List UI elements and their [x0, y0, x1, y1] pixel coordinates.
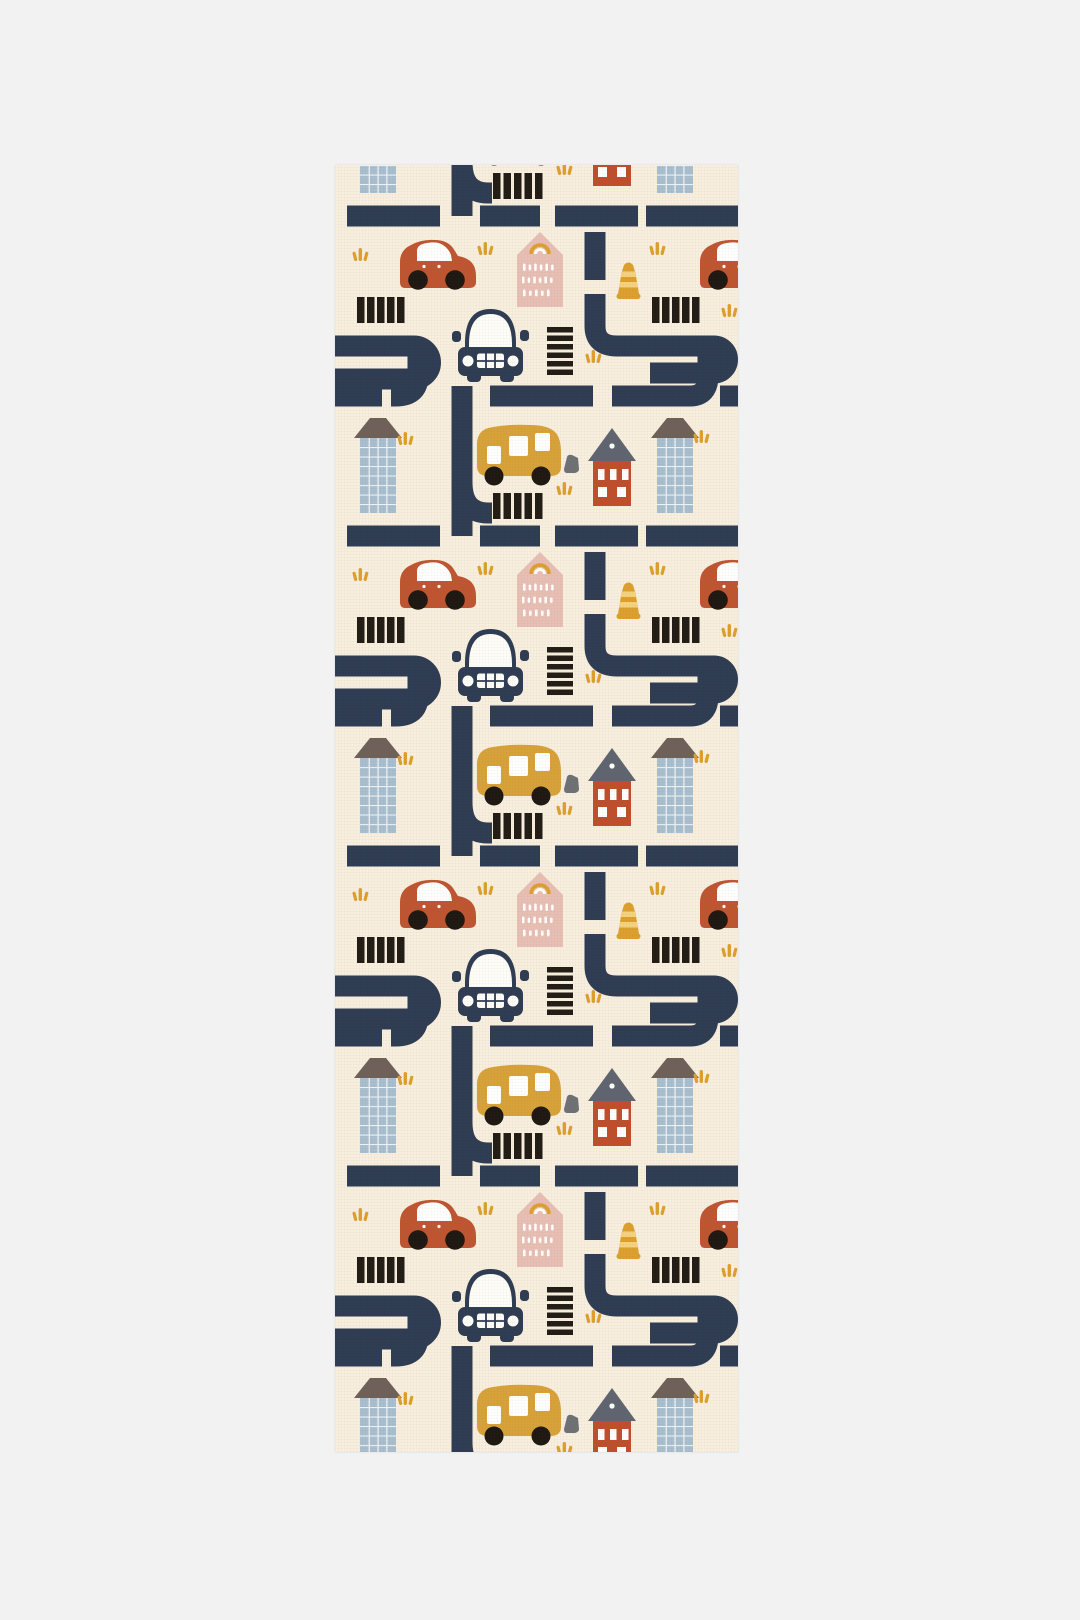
product-image-canvas — [0, 0, 1080, 1620]
play-mat-panel — [335, 165, 738, 1452]
play-mat-pattern — [335, 165, 738, 1452]
